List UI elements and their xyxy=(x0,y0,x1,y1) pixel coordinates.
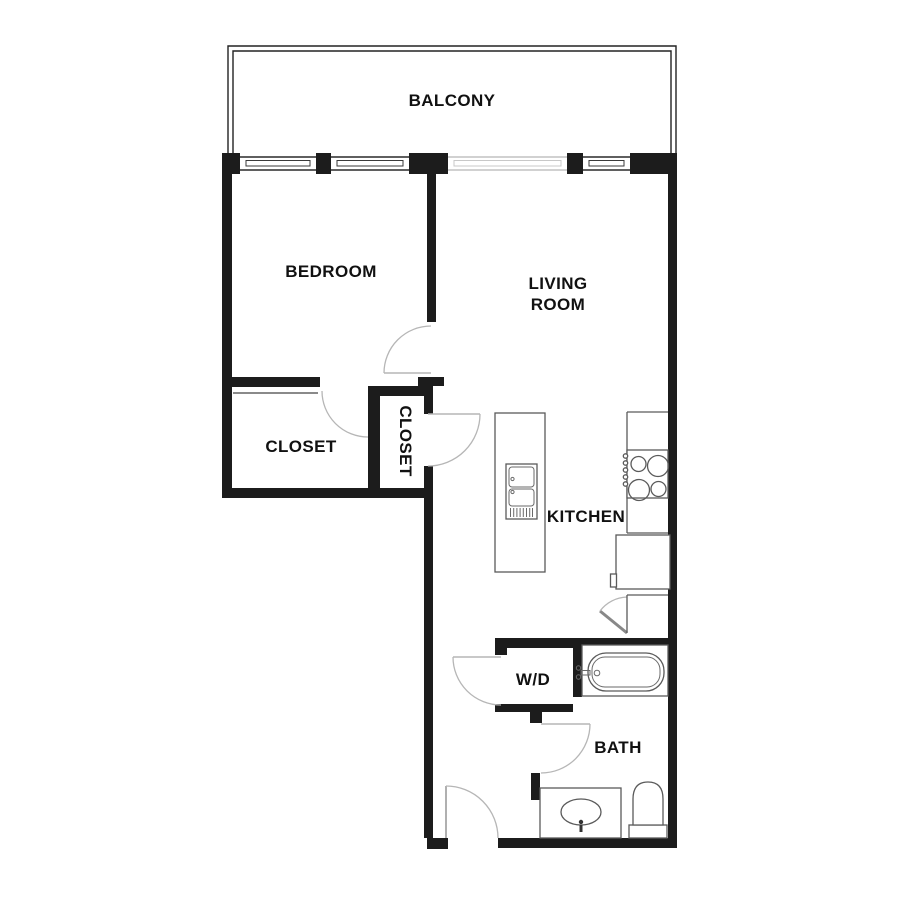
door-bath xyxy=(541,724,590,773)
bath-label: BATH xyxy=(594,738,642,757)
wall-bedroom-divider xyxy=(427,174,436,322)
cooktop-icon xyxy=(623,450,668,501)
floor-plan-page: BALCONY BEDROOM LIVING ROOM CLOSET CLOSE… xyxy=(0,0,900,900)
wall-bathdoor-stub-bottom xyxy=(531,773,540,800)
wall-left-exterior xyxy=(222,153,232,498)
wall-bathdoor-stub-top xyxy=(530,712,542,723)
wall-hall-closet-north xyxy=(368,386,432,396)
hall-closet-label: CLOSET xyxy=(396,405,415,477)
window-living-room xyxy=(583,157,630,170)
toilet-icon xyxy=(629,782,667,838)
kitchen-island xyxy=(495,413,545,572)
living-room-label-line2: ROOM xyxy=(531,295,585,314)
wall-bottom xyxy=(498,838,677,848)
double-sink-icon xyxy=(506,464,537,519)
bathtub-icon xyxy=(576,645,668,696)
refrigerator-icon xyxy=(611,535,671,589)
door-laundry xyxy=(453,657,501,705)
window-bedroom-left xyxy=(240,157,316,170)
laundry-label: W/D xyxy=(516,670,550,689)
wall-hall-cap xyxy=(418,377,444,386)
bedroom-closet-label: CLOSET xyxy=(265,437,337,456)
window-bedroom-right xyxy=(331,157,409,170)
wall-closet-divider xyxy=(368,386,380,497)
pantry-niche xyxy=(627,595,668,633)
door-bedroom xyxy=(384,326,431,373)
door-pantry xyxy=(600,597,627,633)
floor-plan-drawing: BALCONY BEDROOM LIVING ROOM CLOSET CLOSE… xyxy=(0,0,900,900)
wall-wd-jamb-top xyxy=(495,648,507,655)
wall-wd-south xyxy=(495,704,573,712)
balcony-label: BALCONY xyxy=(409,91,496,110)
balcony-sliding-door xyxy=(448,157,567,170)
wall-hall-upper-stub xyxy=(424,386,433,414)
window-wall xyxy=(222,153,677,174)
vanity-sink-icon xyxy=(540,788,621,838)
wall-right-exterior xyxy=(668,153,677,848)
wall-entry-corner xyxy=(427,838,448,849)
wall-bedroom-south xyxy=(222,377,320,387)
door-bedroom-closet xyxy=(322,391,368,437)
doors xyxy=(322,326,627,838)
wall-closets-south xyxy=(222,488,432,498)
wall-hall-west xyxy=(424,466,433,838)
door-hall-closet xyxy=(428,414,480,466)
bedroom-label: BEDROOM xyxy=(285,262,377,281)
living-room-label-line1: LIVING xyxy=(528,274,587,293)
kitchen-label: KITCHEN xyxy=(547,507,625,526)
door-entry xyxy=(446,786,498,838)
